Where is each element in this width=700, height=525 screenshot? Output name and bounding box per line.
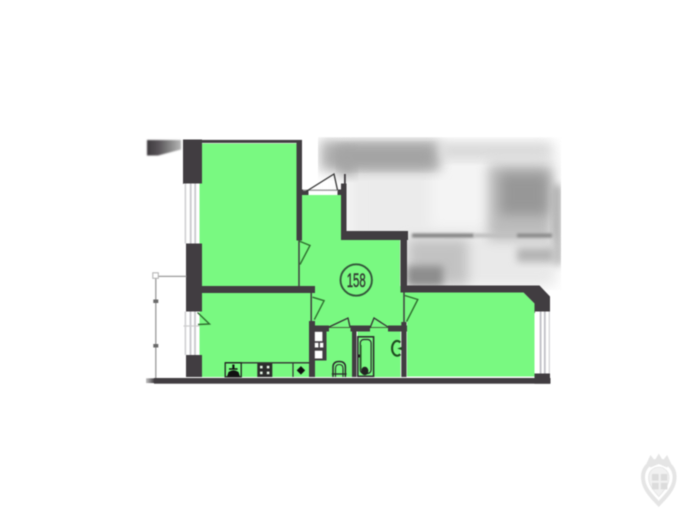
svg-text:158: 158 [347, 271, 366, 292]
